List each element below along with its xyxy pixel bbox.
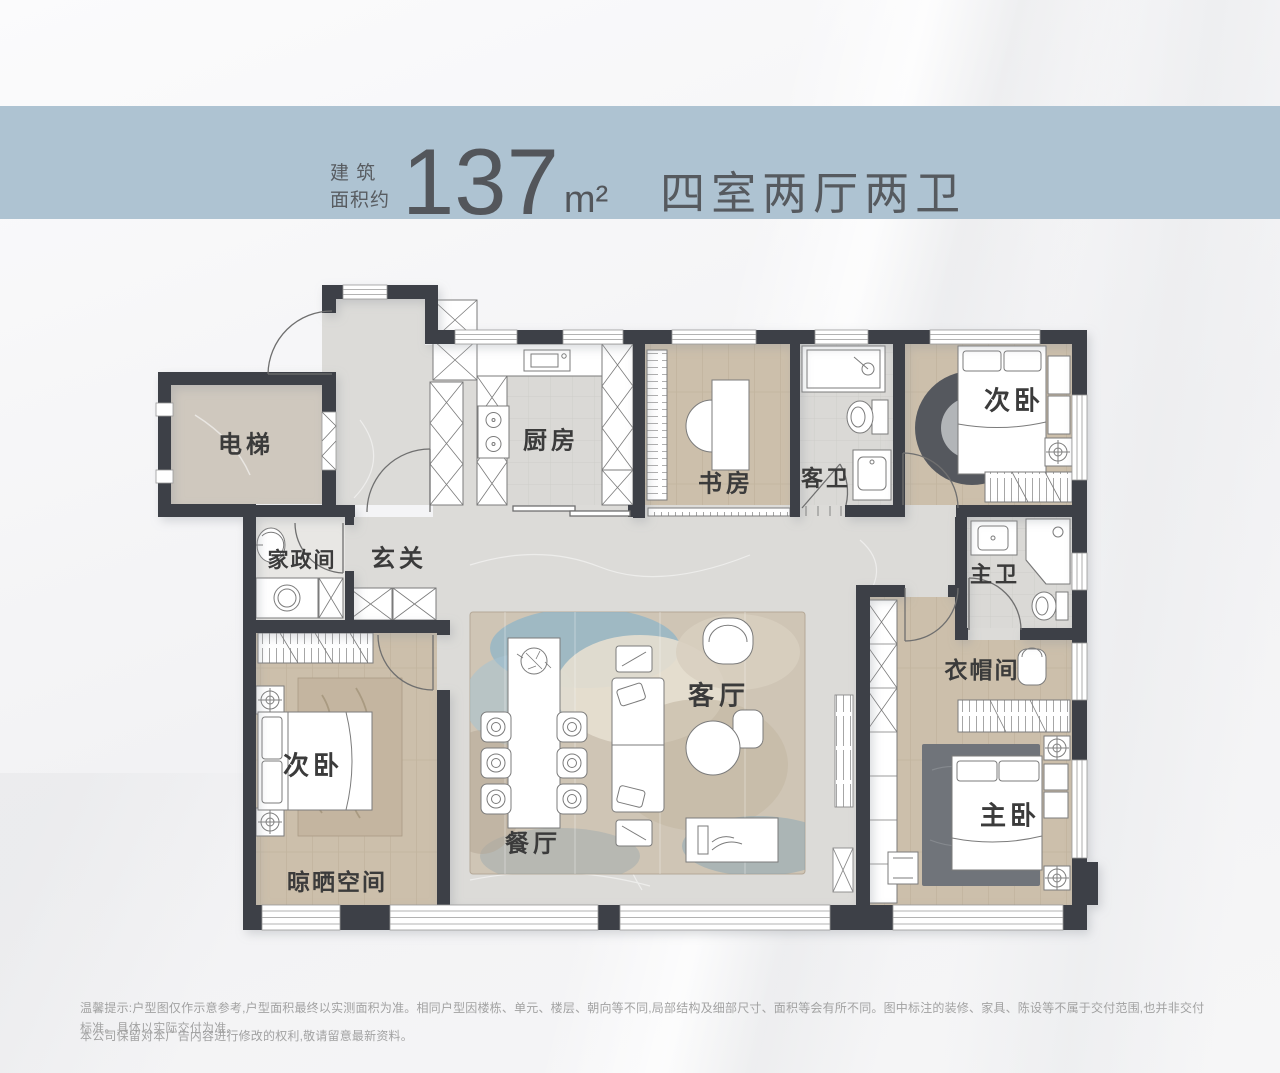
room-label-kitchen: 厨房 bbox=[523, 421, 579, 456]
living-screen bbox=[833, 695, 853, 892]
room-label-foyer: 玄关 bbox=[371, 539, 427, 574]
bedroom-west-furniture-icon bbox=[256, 633, 373, 836]
room-label-cloakroom: 衣帽间 bbox=[945, 651, 1020, 685]
room-label-study: 书房 bbox=[698, 464, 754, 499]
floor-plan bbox=[0, 0, 1280, 1073]
room-label-guest-bath: 客卫 bbox=[801, 461, 851, 493]
room-label-bedroom-west: 次卧 bbox=[283, 746, 343, 783]
room-label-drying-space: 晾晒空间 bbox=[287, 863, 387, 897]
room-label-bedroom-north: 次卧 bbox=[984, 381, 1044, 418]
room-label-elevator: 电梯 bbox=[218, 425, 274, 460]
room-label-dining-room: 餐厅 bbox=[505, 824, 561, 859]
room-label-housekeeping: 家政间 bbox=[268, 544, 337, 574]
tv-bench-icon bbox=[686, 818, 778, 862]
disclaimer-line2: 本公司保留对本广告内容进行修改的权利,敬请留意最新资料。 bbox=[80, 1026, 1208, 1046]
room-label-master-bedroom: 主卧 bbox=[980, 796, 1040, 833]
room-label-living-room: 客厅 bbox=[688, 676, 750, 713]
room-label-master-bath: 主卫 bbox=[970, 557, 1020, 589]
